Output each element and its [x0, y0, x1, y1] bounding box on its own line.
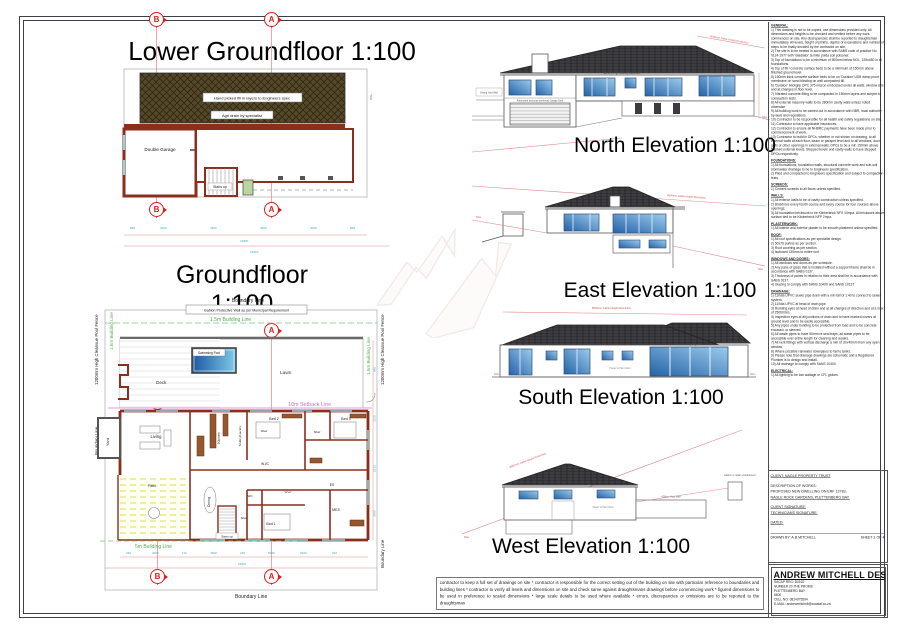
- company-address3: 6600: [774, 593, 886, 597]
- lower-stairs: Stairs up: [205, 168, 237, 196]
- dim: 890: [130, 226, 135, 230]
- ngl: NGL: [758, 268, 764, 271]
- company-address2: PLETTENBERG BAY: [774, 589, 886, 593]
- patio-label: Patio: [148, 484, 157, 488]
- fill-note-text: Hand picked fill in layers to Engineers …: [214, 96, 290, 101]
- note-line: 12) Contractor to ensure all NHBRC payme…: [771, 127, 885, 136]
- ngl: NGL: [476, 216, 482, 219]
- roof: [502, 464, 638, 487]
- note-line: 3) Thickness of panes in relation to the…: [771, 274, 885, 283]
- dim: 4000: [152, 551, 159, 555]
- finish-note: Plaster & Paint finish: [592, 506, 614, 509]
- boundary-bottom-label: Boundary Line: [235, 594, 267, 600]
- note-line: 9) All building work to be carried out i…: [771, 110, 885, 119]
- restriction-label: 8500mm Gable Height Restriction: [667, 193, 707, 200]
- restriction-label: 8500mm Gable Height Restriction: [592, 306, 631, 310]
- setback-label: 10m Setback Line: [288, 402, 331, 408]
- garage-room: Double Garage: [124, 129, 196, 196]
- dim: 5080: [268, 551, 275, 555]
- wc-label: WC: [248, 494, 254, 498]
- ngl-label: NGL: [369, 94, 373, 101]
- note-line: 1) This drawing is not to be copied, use…: [771, 28, 885, 49]
- note-line: 9) Please note that drainage drawings ar…: [771, 354, 885, 363]
- gabion-wall-label: Gabion Protective Wall as per Municipal …: [186, 305, 307, 314]
- south-elevation-title: South Elevation 1:100: [516, 386, 726, 410]
- west-elevation-title: West Elevation 1:100: [486, 535, 696, 559]
- note-line: 4) Inspection eyes at all junctions of d…: [771, 316, 885, 325]
- note-line: 3) All foundation brickwork to be Klinke…: [771, 211, 885, 220]
- company-reg: SACAP REG: D0162: [774, 580, 886, 584]
- note-line: 5) 150mm thick concrete surface beds to …: [771, 75, 885, 84]
- dated-label: DATED:: [771, 520, 885, 526]
- note-line: 2) The site is to be treated in accordan…: [771, 50, 885, 59]
- general-notes: GENERAL:1) This drawing is not to be cop…: [771, 24, 885, 466]
- note-line: 8) All external masonry walls to be 280m…: [771, 101, 885, 110]
- wic-label: W.I/C: [261, 462, 269, 466]
- mes-label: MES: [332, 508, 340, 512]
- low-wall: 600mm High Wall: [636, 486, 742, 518]
- dim: 3120: [373, 415, 377, 422]
- company-cell: CELL NO: 0824075594: [774, 598, 886, 602]
- note-line: 2) Brickforce every fourth course and ev…: [771, 203, 885, 212]
- boundary-top-label: Boundary Line: [232, 298, 264, 304]
- garage-door: [510, 103, 570, 125]
- fence-left: 1200mm High Cleanvue Pool Fence: [94, 314, 99, 385]
- north-elevation-title: North Elevation 1:100: [570, 134, 780, 158]
- gf-stairs-label: Stairs up: [221, 535, 233, 539]
- note-line: 7) All vent fittings with vertical disch…: [771, 341, 885, 350]
- dim-total: 21800: [238, 562, 247, 566]
- note-line: 6) 'Duraton' brickgrip DPC 375 micron em…: [771, 84, 885, 93]
- agri-note-label: Agri drain by specialist: [211, 111, 273, 119]
- dim: 110: [182, 551, 187, 555]
- body: Plaster & Paint finish: [504, 487, 636, 534]
- note-line: 1) All lighting to be low wattage or CFL…: [771, 374, 885, 378]
- company-address1: NUMBER 20 THE PROMS: [774, 584, 886, 588]
- note-line: 3) Rodding eyes at head of drain and at …: [771, 307, 885, 316]
- gabion-text: Gabion Protective Wall as per Municipal …: [204, 309, 289, 313]
- agri-note-text: Agri drain by specialist: [222, 113, 263, 118]
- lower-dimensions: 890 4000 4300 4300 4000 890 21800 24810: [124, 226, 390, 254]
- yard: Yard: [98, 418, 120, 458]
- note-line: 7) Vibrated concrete filling to be compa…: [771, 93, 885, 102]
- bed2-label: Bed 2: [269, 417, 278, 421]
- disclaimer-text: contractor to keep a full set of drawing…: [437, 578, 762, 609]
- balustrade-note: 1800mm High Masonry Balustrade: [604, 72, 641, 75]
- note-line: 6) All waste pipes to have 50mm re-seal …: [771, 333, 885, 342]
- note-line: 5) Any pipes under building to be protec…: [771, 324, 885, 333]
- ngl: NGL: [494, 373, 500, 376]
- pool-label: Swimming Pool: [198, 351, 220, 355]
- lower-stairs-label: Stairs up: [213, 185, 227, 189]
- note-line: 10) All drainage to comply with SANS 104…: [771, 363, 885, 367]
- drawn-by: DRAWN BY: A.B MITCHELL: [771, 534, 816, 540]
- note-line: 3) Top of foundations to be a minimum of…: [771, 58, 885, 67]
- deck-label: Deck: [156, 380, 167, 385]
- ngl: NGL: [464, 536, 470, 539]
- dim-total: 21800: [240, 239, 249, 243]
- gf-stairs: Stairs up: [216, 506, 238, 539]
- fence-right: 1200mm High Cleanvue Pool Fence: [380, 314, 385, 385]
- note-line: 1) Cement screeds to all floors unless s…: [771, 187, 885, 191]
- gate-swing: [366, 393, 375, 402]
- dim: 240: [332, 551, 337, 555]
- right-block: 1800mm High Masonry Balustrade: [576, 72, 754, 116]
- plinth: [506, 520, 572, 534]
- dim: 4000: [160, 226, 167, 230]
- es-label: ES: [330, 483, 335, 487]
- building-line-5: 5m Building Line: [100, 541, 300, 550]
- note-line: 1) 110dia UPVC sewer pipe drain with a m…: [771, 294, 885, 303]
- ngl: NGL: [762, 116, 768, 119]
- west-elevation: 8500mm Gable Height Restriction Plaster …: [462, 424, 762, 546]
- garage-label: Double Garage: [144, 147, 176, 152]
- store-room: [243, 180, 253, 195]
- yard-wall-text: Drying Yard Wall: [480, 92, 498, 95]
- yard-wall-label: Drying Yard Wall: [472, 88, 504, 116]
- yard-label: Yard: [105, 438, 110, 446]
- note-line: 1) All interior and exterior plaster to …: [771, 227, 885, 231]
- company-name: ANDREW MITCHELL DESIGNS: [772, 568, 885, 580]
- ngl: NGL: [750, 373, 756, 376]
- dim-total: 24810: [250, 250, 259, 254]
- note-line: 4) Isoboard 135mm to entire roof.: [771, 251, 885, 255]
- left-block: Automated sectional overhead Garage Door…: [472, 75, 576, 127]
- lawn-label: Lawn: [280, 370, 292, 376]
- dim: 4300: [210, 226, 217, 230]
- gabion-detail: Gabion to retain embankment: [724, 474, 756, 500]
- bl15-right: 1.5m Building Line: [366, 337, 371, 375]
- shwr-label: Shwr: [261, 429, 268, 433]
- bed1-label: Bed 1: [266, 522, 275, 526]
- slider-note: Stack Sliders by Engineer: [674, 344, 702, 347]
- roof: [545, 187, 685, 209]
- dim: 4000: [310, 226, 317, 230]
- dining-label: Dining: [207, 497, 211, 507]
- shwr2-label: Shwr: [314, 430, 321, 434]
- note-line: 4) Top of fill / concrete surface beds t…: [771, 67, 885, 76]
- disclaimer-box: contractor to keep a full set of drawing…: [436, 577, 764, 610]
- scullery-label: Scullery/Laundry: [238, 425, 242, 446]
- gabion-note: Gabion to retain embankment: [724, 474, 756, 477]
- shwr3-label: Shwr: [241, 516, 248, 520]
- finish-note: Plaster & Paint finish: [609, 367, 631, 370]
- patio: Patio: [120, 478, 188, 538]
- sheet-number: SHEET 1 OF 4: [861, 534, 885, 540]
- roof: [500, 46, 754, 75]
- dim: 4300: [210, 551, 217, 555]
- boundary-right: Boundary Line: [380, 539, 385, 568]
- living-label: Living: [151, 434, 163, 439]
- kitchen-label: Kitchen: [217, 432, 221, 443]
- drawing-sheet: Lower Groundfloor 1:100 B A B A Hand pic…: [0, 0, 900, 635]
- slider-door: [509, 349, 532, 375]
- body: [547, 207, 673, 268]
- fill-note-label: Hand picked fill in layers to Engineers …: [203, 93, 302, 102]
- note-line: 1) All foundations, foundation walls, st…: [771, 164, 885, 173]
- bl15-top: 1.5m Building Line: [210, 317, 251, 323]
- note-line: 2) Any pane of glass that is installed w…: [771, 266, 885, 275]
- low-wall-note: 600mm High Wall: [662, 496, 681, 499]
- wpc-label: W+C: [285, 490, 293, 494]
- dim: 890: [373, 367, 377, 372]
- tower: [482, 212, 525, 242]
- body: Stack Sliders by Engineer Plaster & Pain…: [500, 344, 748, 378]
- note-line: 2) Piled and compacted to Engineers spec…: [771, 172, 885, 181]
- garage-note: Automated sectional overhead Garage Door: [517, 100, 564, 103]
- note-line: 13) Contractor to build in DPCs, whether…: [771, 135, 885, 156]
- stack-slider: [650, 347, 728, 376]
- restriction-label: 8500mm Gable Height Restriction: [509, 451, 547, 469]
- swimming-pool: Swimming Pool: [192, 348, 236, 373]
- dim: 890: [350, 226, 355, 230]
- company-email: E-MAIL: andrewmitchell@coastal.co.za: [774, 602, 886, 606]
- dim: 240: [240, 551, 245, 555]
- bl5-label: 5m Building Line: [135, 544, 172, 550]
- dim: 240: [126, 551, 131, 555]
- bl15-left: 1.5m Building Line: [109, 312, 114, 350]
- dim: 2400: [300, 551, 307, 555]
- note-line: 4) Glazing to comply with SANS 10400 and…: [771, 283, 885, 287]
- dim: 3400: [373, 510, 377, 517]
- bed3-label: Bed 3: [341, 417, 350, 421]
- dim: 4300: [260, 226, 267, 230]
- lower-groundfloor-plan: Hand picked fill in layers to Engineers …: [100, 5, 430, 255]
- groundfloor-plan: Boundary Line Gabion Protective Wall as …: [60, 290, 400, 608]
- project-info-block: CLIENT: NAGLE PROPERTY TRUST DESCRIPTION…: [768, 470, 888, 563]
- roof: [500, 323, 750, 345]
- pool-garden-area: Swimming Pool Deck Lawn: [118, 338, 363, 408]
- height-restriction-line: [503, 312, 747, 315]
- company-title-block: ANDREW MITCHELL DESIGNS SACAP REG: D0162…: [768, 564, 888, 618]
- notes-list: GENERAL:1) This drawing is not to be cop…: [771, 24, 885, 378]
- dim: 2230: [373, 465, 377, 472]
